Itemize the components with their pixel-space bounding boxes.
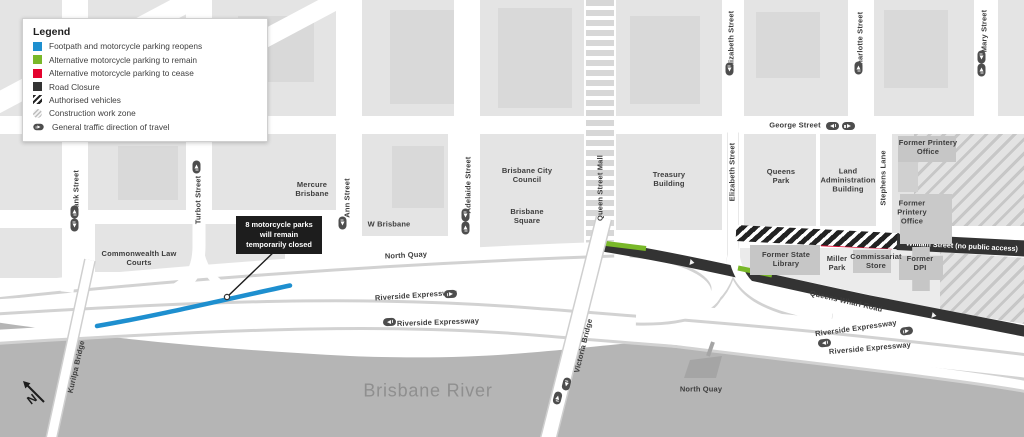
- remain-swatch-icon: [33, 55, 42, 64]
- closure-swatch-icon: [33, 82, 42, 91]
- traffic-direction-icon: [817, 338, 831, 347]
- traffic-direction-icon: [443, 290, 457, 299]
- place-label-north-quay-ferry: North Quay: [680, 386, 722, 395]
- street-label-turbot: Turbot Street: [195, 176, 204, 224]
- street-label-elizabeth: Elizabeth Street: [729, 143, 738, 202]
- traffic-direction-icon: [552, 391, 563, 406]
- legend-item-label: General traffic direction of travel: [52, 122, 169, 132]
- legend-item-remain: Alternative motorcycle parking to remain: [33, 55, 257, 65]
- city-block: [0, 134, 62, 210]
- reopens-swatch-icon: [33, 42, 42, 51]
- city-block: [998, 0, 1024, 116]
- legend-item-construction: Construction work zone: [33, 108, 257, 118]
- traffic-direction-icon: [842, 122, 855, 130]
- street-label-riverside-expressway: Riverside Expressway: [397, 317, 479, 329]
- place-label-state-library: Former State Library: [757, 251, 815, 269]
- place-label-former-printery: Former Printery Office: [892, 200, 932, 227]
- street-label-riverside-expressway: Riverside Expressway: [829, 341, 912, 357]
- legend-item-label: Alternative motorcycle parking to remain: [49, 55, 197, 65]
- street-label-victoria-bridge: Victoria Bridge: [573, 318, 595, 374]
- legend-item-label: Authorised vehicles: [49, 95, 121, 105]
- legend-item-authorised: Authorised vehicles: [33, 95, 257, 105]
- place-label-mercure: Mercure Brisbane: [289, 181, 335, 199]
- legend-title: Legend: [33, 26, 257, 38]
- building: [390, 10, 454, 104]
- place-label-w-brisbane: W Brisbane: [368, 221, 411, 230]
- street-label-riverside-expressway: Riverside Expressway: [815, 319, 898, 339]
- construction-hatch-icon: [33, 109, 42, 118]
- building: [756, 12, 820, 78]
- building: [630, 16, 700, 104]
- traffic-arrow: [931, 312, 937, 319]
- street-label-mary: Mary Street: [981, 10, 990, 53]
- north-letter: N: [24, 391, 39, 407]
- legend-item-label: Construction work zone: [49, 108, 136, 118]
- traffic-direction-icon: [338, 217, 346, 230]
- legend-item-label: Alternative motorcycle parking to cease: [49, 68, 194, 78]
- traffic-direction-icon: [70, 219, 78, 232]
- place-label-former-printery: Former Printery Office: [897, 139, 959, 157]
- legend-item-reopens: Footpath and motorcycle parking reopens: [33, 41, 257, 51]
- legend-item-label: Footpath and motorcycle parking reopens: [49, 41, 202, 51]
- legend-panel: Legend Footpath and motorcycle parking r…: [22, 18, 268, 142]
- legend-item-cease: Alternative motorcycle parking to cease: [33, 68, 257, 78]
- traffic-arrow: [689, 259, 695, 266]
- place-label-land-administration: Land Administration Building: [815, 168, 881, 195]
- building: [884, 10, 948, 88]
- construction-work-zone: [938, 252, 1024, 324]
- legend-item-traffic-direction: General traffic direction of travel: [33, 122, 257, 132]
- legend-item-label: Road Closure: [49, 82, 100, 92]
- place-label-brisbane-river: Brisbane River: [363, 381, 492, 402]
- callout-motorcycle-parks: 8 motorcycle parks will remain temporari…: [236, 216, 322, 254]
- place-label-former-dpi: Former DPI: [902, 255, 938, 273]
- north-compass: N: [14, 374, 54, 419]
- street-label-george: George Street: [769, 122, 821, 131]
- brisbane-river-shape: [0, 322, 1024, 437]
- traffic-direction-icon: [725, 63, 733, 76]
- city-block: [480, 134, 584, 252]
- traffic-direction-icon: [826, 122, 839, 130]
- street-label-ann: Ann Street: [344, 178, 353, 217]
- street-label-elizabeth: Elizabeth Street: [728, 11, 737, 70]
- city-block: [0, 228, 62, 278]
- map-canvas: William Street (no public access) Tank S…: [0, 0, 1024, 437]
- cease-swatch-icon: [33, 69, 42, 78]
- place-label-brisbane-square: Brisbane Square: [505, 208, 549, 226]
- place-label-queens-park: Queens Park: [762, 168, 800, 186]
- building: [498, 8, 572, 108]
- traffic-direction-icon: [899, 326, 913, 336]
- north-quay-ferry-pier: [684, 342, 722, 378]
- street-label-kurilpa-bridge: Kurilpa Bridge: [67, 340, 88, 394]
- traffic-direction-icon: [70, 206, 78, 219]
- traffic-direction-icon: [561, 377, 572, 392]
- traffic-direction-icon: [854, 62, 862, 75]
- legend-item-road-closure: Road Closure: [33, 82, 257, 92]
- traffic-direction-icon: [192, 161, 200, 174]
- traffic-direction-icon: [461, 222, 469, 235]
- traffic-direction-icon: [977, 51, 985, 64]
- callout-text: 8 motorcycle parks will remain temporari…: [245, 220, 312, 249]
- place-label-treasury: Treasury Building: [647, 171, 691, 189]
- place-label-commissariat: Commissariat Store: [846, 253, 906, 271]
- footpath-reopens-segment: [97, 286, 290, 327]
- building-former-printery-annex: [898, 162, 918, 192]
- traffic-direction-icon: [382, 318, 395, 326]
- place-label-brisbane-city-council: Brisbane City Council: [499, 167, 555, 185]
- building: [118, 146, 178, 200]
- authorised-hatch-icon: [33, 95, 42, 104]
- place-label-law-courts: Commonwealth Law Courts: [95, 250, 183, 268]
- traffic-direction-icon: [33, 124, 43, 130]
- traffic-direction-icon: [461, 209, 469, 222]
- street-label-north-quay: North Quay: [385, 250, 428, 261]
- building: [392, 146, 444, 208]
- street-label-queen-street-mall: Queen Street Mall: [597, 155, 606, 221]
- traffic-direction-icon: [977, 64, 985, 77]
- street-label-adelaide: Adelaide Street: [465, 157, 474, 214]
